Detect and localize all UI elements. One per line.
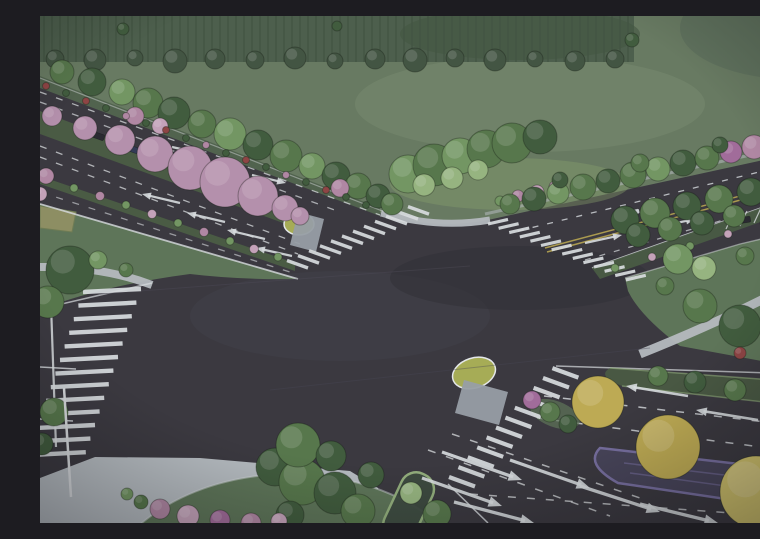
photo-vignette bbox=[40, 16, 760, 523]
intersection-rendering-photo: Aerial 3D rendering of a planned four-le… bbox=[40, 16, 760, 523]
rendering-canvas: Aerial 3D rendering of a planned four-le… bbox=[40, 16, 760, 523]
